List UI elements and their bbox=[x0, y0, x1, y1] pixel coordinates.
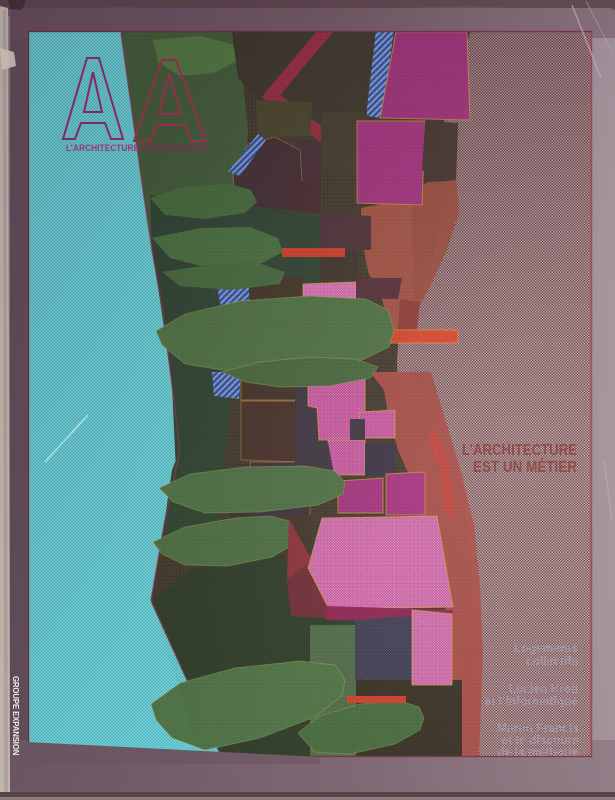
svg-text:GROUPE EXPANSION: GROUPE EXPANSION bbox=[11, 676, 20, 756]
